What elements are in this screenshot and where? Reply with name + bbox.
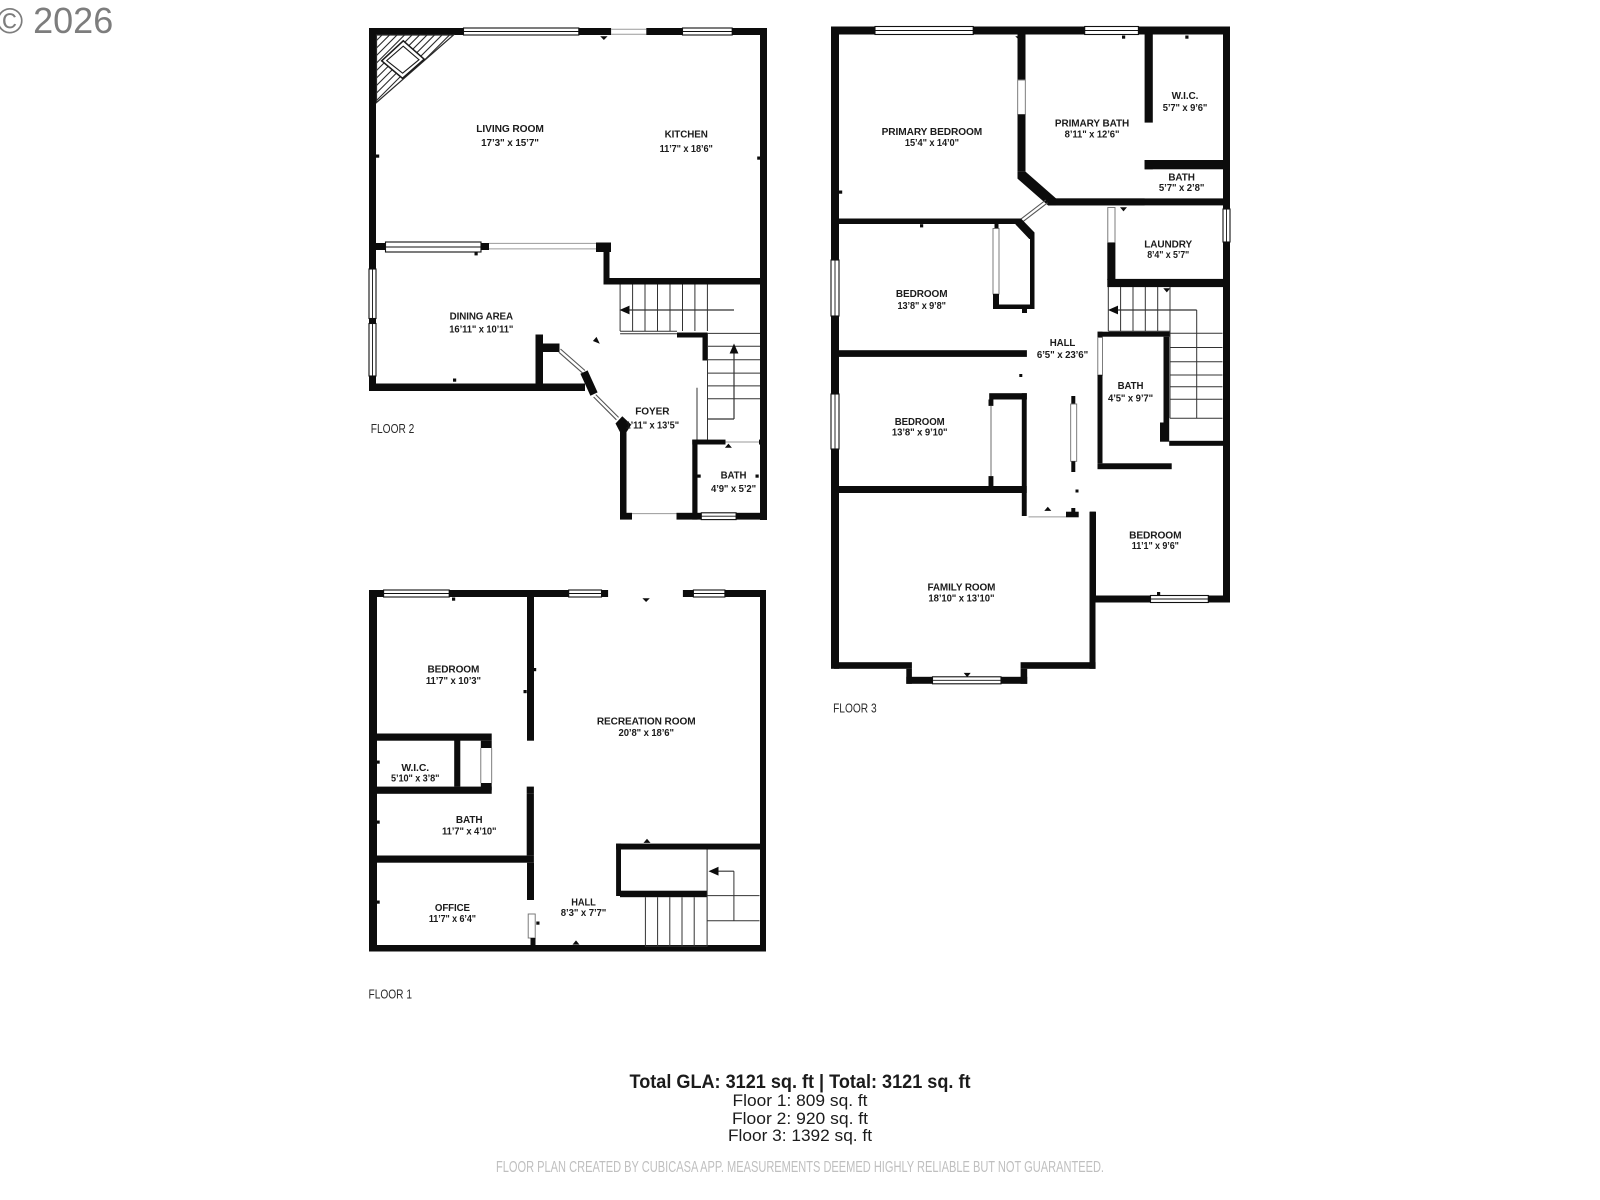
svg-text:13’8" x 9’8": 13’8" x 9’8" [898,300,947,312]
svg-text:FLOOR PLAN CREATED BY CUBICASA: FLOOR PLAN CREATED BY CUBICASA APP. MEAS… [496,1159,1104,1176]
svg-text:11’7" x 4’10": 11’7" x 4’10" [442,826,497,838]
svg-text:4’5" x 9’7": 4’5" x 9’7" [1108,393,1153,405]
svg-text:18’10" x 13’10": 18’10" x 13’10" [928,592,994,604]
svg-text:11’7" x 6’4": 11’7" x 6’4" [429,913,476,925]
svg-text:6’5" x 23’6": 6’5" x 23’6" [1037,349,1088,361]
svg-text:5’7" x 2’8": 5’7" x 2’8" [1159,182,1205,194]
svg-text:W.I.C.: W.I.C. [1172,90,1199,102]
svg-text:13’8" x 9’10": 13’8" x 9’10" [892,426,948,438]
svg-text:BATH: BATH [1118,380,1144,392]
svg-text:11’1" x 9’6": 11’1" x 9’6" [1132,540,1179,552]
svg-text:Floor 3: 1392 sq. ft: Floor 3: 1392 sq. ft [728,1126,872,1145]
svg-text:8’4" x 5’7": 8’4" x 5’7" [1147,249,1189,261]
svg-text:BATH: BATH [456,814,483,826]
svg-text:RECREATION ROOM: RECREATION ROOM [597,715,696,727]
svg-text:17’3" x 15’7": 17’3" x 15’7" [481,137,539,149]
svg-text:LIVING ROOM: LIVING ROOM [476,123,544,135]
svg-text:11’7" x 10’3": 11’7" x 10’3" [426,675,481,687]
svg-text:Total GLA: 3121 sq. ft | Total: Total GLA: 3121 sq. ft | Total: 3121 sq.… [630,1072,972,1093]
svg-text:FLOOR 1: FLOOR 1 [369,987,413,1002]
svg-text:5’7" x 9’6": 5’7" x 9’6" [1163,102,1208,114]
svg-text:DINING AREA: DINING AREA [450,311,514,323]
svg-text:FOYER: FOYER [635,405,670,417]
svg-text:1’11" x 13’5": 1’11" x 13’5" [626,420,680,432]
svg-text:BEDROOM: BEDROOM [428,664,480,676]
svg-text:4’9" x 5’2": 4’9" x 5’2" [711,483,756,495]
svg-text:KITCHEN: KITCHEN [665,129,708,141]
svg-text:Floor 1: 809 sq. ft: Floor 1: 809 sq. ft [733,1091,868,1110]
svg-text:20’8" x 18’6": 20’8" x 18’6" [619,727,674,739]
svg-text:FLOOR 3: FLOOR 3 [833,701,877,716]
svg-text:15’4" x 14’0": 15’4" x 14’0" [905,137,959,149]
svg-text:FLOOR 2: FLOOR 2 [371,421,415,436]
svg-text:© 2026: © 2026 [0,0,113,41]
svg-text:8’3" x 7’7": 8’3" x 7’7" [561,907,607,919]
svg-text:HALL: HALL [1050,337,1076,349]
svg-text:PRIMARY BATH: PRIMARY BATH [1055,117,1129,129]
svg-text:8’11" x 12’6": 8’11" x 12’6" [1065,129,1120,141]
svg-text:BATH: BATH [721,470,747,482]
svg-text:16’11" x 10’11": 16’11" x 10’11" [449,324,513,336]
svg-text:BEDROOM: BEDROOM [896,288,948,300]
svg-text:11’7" x 18’6": 11’7" x 18’6" [660,143,713,155]
svg-text:5’10" x 3’8": 5’10" x 3’8" [391,773,439,785]
